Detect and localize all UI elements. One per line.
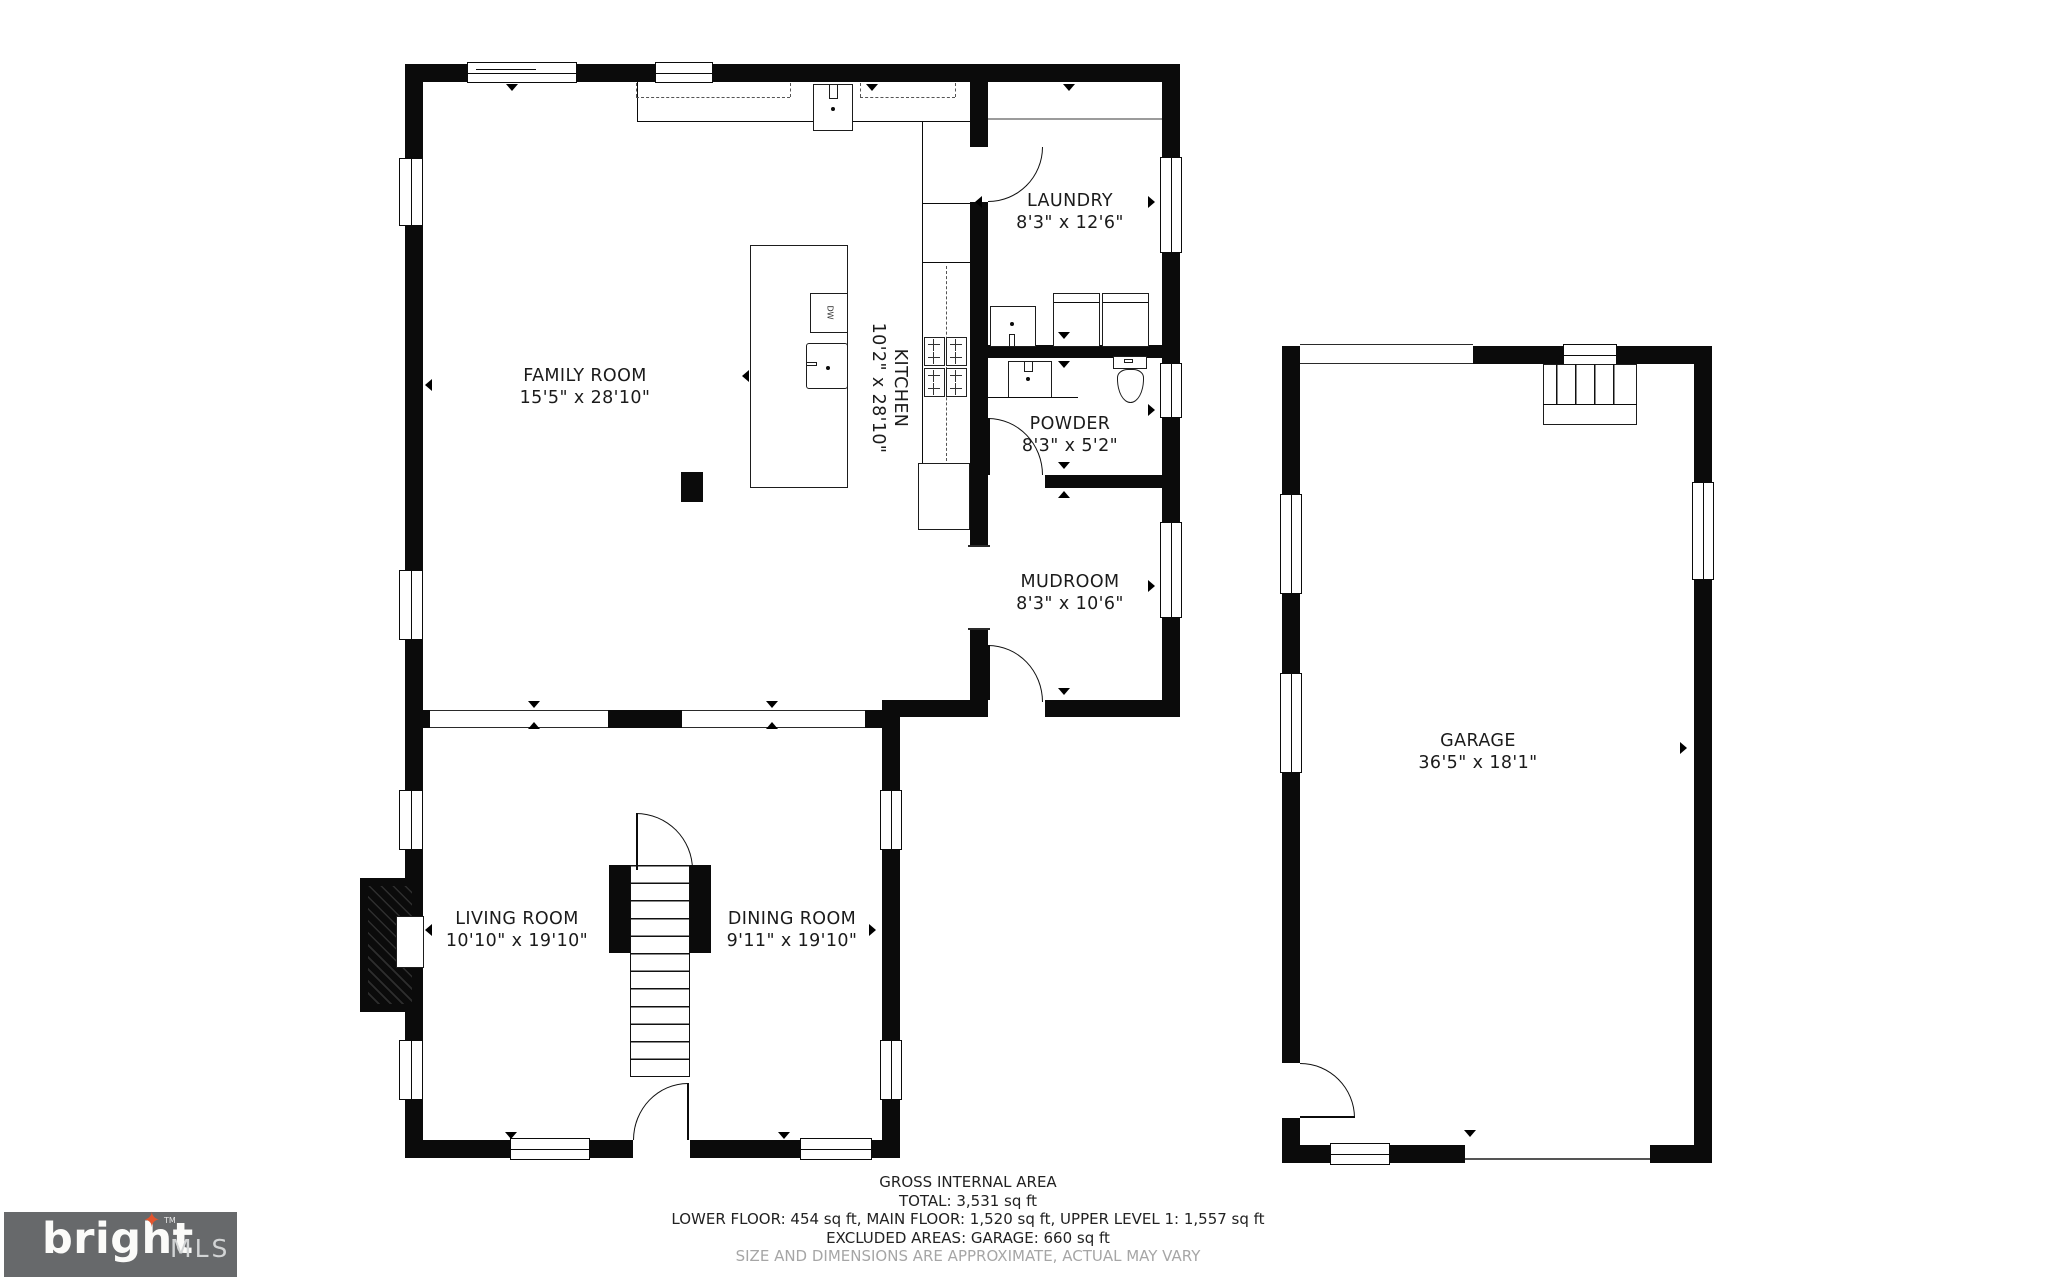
- wall-marker-icon: [528, 722, 540, 729]
- wall-marker-icon: [1680, 742, 1687, 754]
- dishwasher: DW: [810, 293, 848, 333]
- area-summary-floors: LOWER FLOOR: 454 sq ft, MAIN FLOOR: 1,52…: [568, 1210, 1368, 1229]
- room-label-garage: GARAGE 36'5" x 18'1": [1358, 730, 1598, 774]
- door-swing-arc-stairs: [636, 813, 693, 870]
- room-dims: 10'10" x 19'10": [397, 930, 637, 952]
- wall-marker-icon: [1058, 688, 1070, 695]
- powder-faucet: [1024, 361, 1033, 372]
- laundry-sink-faucet: [1009, 334, 1015, 347]
- opening-family-living: [430, 710, 608, 728]
- staircase-garage-landing: [1543, 404, 1637, 405]
- cabinet-dashed-line: [636, 97, 790, 98]
- powder-counter-line: [988, 397, 1078, 398]
- window-dining-right-1: [880, 790, 902, 850]
- refrigerator: [918, 463, 970, 530]
- wall-marker-icon: [1058, 332, 1070, 339]
- wall-marker-icon: [425, 379, 432, 391]
- island-sink-faucet: [806, 362, 817, 366]
- room-name: POWDER: [960, 413, 1180, 435]
- room-name: LIVING ROOM: [397, 908, 637, 930]
- room-name: FAMILY ROOM: [465, 365, 705, 387]
- window-family-left-1: [399, 158, 423, 226]
- garage-wall-right: [1694, 346, 1712, 1163]
- wall-marker-icon: [528, 701, 540, 708]
- wall-marker-icon: [506, 84, 518, 91]
- room-label-mudroom: MUDROOM 8'3" x 10'6": [960, 571, 1180, 615]
- wall-marker-icon: [1058, 361, 1070, 368]
- room-dims: 8'3" x 12'6": [960, 212, 1180, 234]
- room-label-family: FAMILY ROOM 15'5" x 28'10": [465, 365, 705, 409]
- counter-edge-right: [922, 122, 923, 463]
- room-name: DINING ROOM: [672, 908, 912, 930]
- room-name: LAUNDRY: [960, 190, 1180, 212]
- counter-edge-top: [637, 121, 970, 122]
- room-dims: 10'2" x 28'10": [867, 288, 889, 488]
- wall-marker-icon: [1063, 84, 1075, 91]
- laundry-shelf-line: [988, 118, 1162, 120]
- window-kitchen-top: [655, 62, 713, 83]
- door-swing-arc-mudroom: [988, 645, 1043, 702]
- wall-marker-icon: [766, 722, 778, 729]
- dryer-lid-line: [1103, 302, 1148, 303]
- window-garage-left-1: [1280, 494, 1302, 594]
- dryer: [1102, 293, 1149, 347]
- door-leaf-stairs: [636, 813, 638, 870]
- wall-marker-icon: [1464, 1130, 1476, 1137]
- door-gap-mudroom: [988, 700, 1045, 717]
- area-summary-total: TOTAL: 3,531 sq ft: [568, 1192, 1368, 1211]
- logo-trademark: TM: [164, 1216, 176, 1225]
- window-powder-right: [1160, 363, 1182, 418]
- toilet-bowl: [1117, 369, 1144, 403]
- cabinet-dashed-end: [636, 83, 637, 97]
- window-garage-bottom: [1330, 1143, 1390, 1165]
- cabinet-dashed-end: [790, 83, 791, 97]
- door-leaf-garage: [1300, 1116, 1355, 1118]
- room-name: MUDROOM: [960, 571, 1180, 593]
- door-gap-front: [633, 1140, 690, 1158]
- window-living-bottom: [510, 1138, 590, 1160]
- wall-marker-icon: [742, 370, 749, 382]
- wall-marker-icon: [778, 1132, 790, 1139]
- door-swing-arc-front: [633, 1083, 688, 1140]
- room-dims: 9'11" x 19'10": [672, 930, 912, 952]
- brightmls-logo: bright ✦ TM MLS: [4, 1212, 237, 1277]
- room-label-laundry: LAUNDRY 8'3" x 12'6": [960, 190, 1180, 234]
- door-leaf-mudroom: [988, 645, 990, 700]
- island-sink-drain: [826, 366, 830, 370]
- window-family-top: [467, 62, 577, 83]
- stove-burner-icon: [946, 337, 967, 366]
- window-family-left-2: [399, 570, 423, 640]
- door-gap-garage: [1282, 1063, 1300, 1118]
- floor-plan: DW: [0, 0, 2048, 1279]
- cabinet-dashed-line: [860, 97, 955, 98]
- stove-burner-icon: [924, 337, 945, 366]
- toilet-flush: [1124, 359, 1133, 363]
- counter-end-top: [637, 82, 638, 121]
- stove-burner-icon: [946, 368, 967, 397]
- room-name: GARAGE: [1358, 730, 1598, 752]
- staircase-garage-treads: [1556, 364, 1624, 405]
- powder-drain: [1026, 377, 1030, 381]
- wall-marker-icon: [766, 701, 778, 708]
- area-summary-title: GROSS INTERNAL AREA: [568, 1173, 1368, 1192]
- room-label-dining: DINING ROOM 9'11" x 19'10": [672, 908, 912, 952]
- window-garage-right: [1692, 482, 1714, 580]
- room-dims: 36'5" x 18'1": [1358, 752, 1598, 774]
- room-label-powder: POWDER 8'3" x 5'2": [960, 413, 1180, 457]
- cabinet-dashed-end: [955, 83, 956, 97]
- wall-marker-icon: [866, 84, 878, 91]
- dishwasher-label: DW: [826, 305, 835, 319]
- room-name: KITCHEN: [889, 288, 911, 488]
- garage-low-wall: [1300, 344, 1473, 364]
- area-summary-disclaimer: SIZE AND DIMENSIONS ARE APPROXIMATE, ACT…: [568, 1247, 1368, 1266]
- room-dims: 15'5" x 28'10": [465, 387, 705, 409]
- area-summary-excluded: EXCLUDED AREAS: GARAGE: 660 sq ft: [568, 1229, 1368, 1248]
- room-label-living: LIVING ROOM 10'10" x 19'10": [397, 908, 637, 952]
- area-summary: GROSS INTERNAL AREA TOTAL: 3,531 sq ft L…: [568, 1173, 1368, 1266]
- chimney-block: [681, 472, 703, 502]
- washer-lid-line: [1054, 302, 1099, 303]
- counter-divider: [922, 262, 970, 263]
- door-swing-arc-garage: [1300, 1063, 1355, 1118]
- door-gap-powder: [988, 475, 1045, 488]
- garage-door-line: [1465, 1158, 1650, 1160]
- kitchen-sink-drain: [831, 107, 835, 111]
- window-slider-line: [476, 69, 536, 70]
- door-leaf-front: [687, 1083, 689, 1140]
- room-dims: 8'3" x 5'2": [960, 435, 1180, 457]
- room-dims: 8'3" x 10'6": [960, 593, 1180, 615]
- staircase-main: [630, 865, 690, 1077]
- stove-burner-icon: [924, 368, 945, 397]
- room-label-kitchen: KITCHEN 10'2" x 28'10": [867, 288, 911, 488]
- laundry-sink-drain: [1010, 322, 1014, 326]
- window-dining-right-2: [880, 1040, 902, 1100]
- window-garage-top: [1563, 344, 1617, 366]
- garage-door-opening: [1465, 1145, 1650, 1163]
- kitchen-sink-faucet: [829, 84, 838, 99]
- logo-star-icon: ✦: [143, 1208, 161, 1232]
- window-living-left-2: [399, 1040, 423, 1100]
- logo-mls-text: MLS: [170, 1234, 230, 1263]
- wall-marker-icon: [1058, 462, 1070, 469]
- window-dining-bottom: [800, 1138, 872, 1160]
- window-garage-left-2: [1280, 673, 1302, 773]
- window-living-left-1: [399, 790, 423, 850]
- wall-marker-icon: [1058, 491, 1070, 498]
- cabinet-dashed-end: [860, 83, 861, 97]
- wall-marker-icon: [505, 1132, 517, 1139]
